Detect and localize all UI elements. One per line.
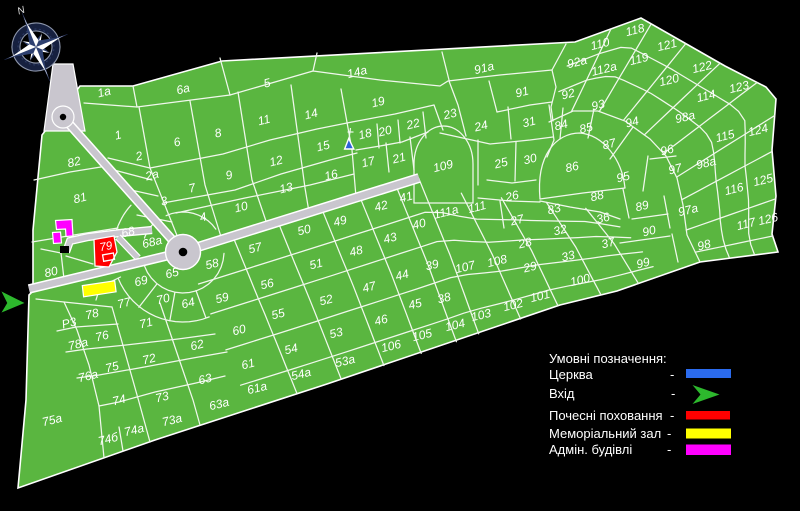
svg-text:Церква: Церква — [549, 367, 594, 382]
svg-text:-: - — [671, 386, 675, 401]
svg-text:-: - — [667, 426, 671, 441]
svg-text:Адмін. будівлі: Адмін. будівлі — [549, 442, 632, 457]
svg-text:Умовні позначення:: Умовні позначення: — [549, 351, 667, 366]
svg-text:-: - — [667, 442, 671, 457]
svg-text:-: - — [670, 408, 674, 423]
svg-text:-: - — [670, 367, 674, 382]
svg-text:Почесні поховання: Почесні поховання — [549, 408, 663, 423]
svg-text:Меморіальний зал: Меморіальний зал — [549, 426, 661, 441]
svg-text:Вхід: Вхід — [549, 386, 575, 401]
